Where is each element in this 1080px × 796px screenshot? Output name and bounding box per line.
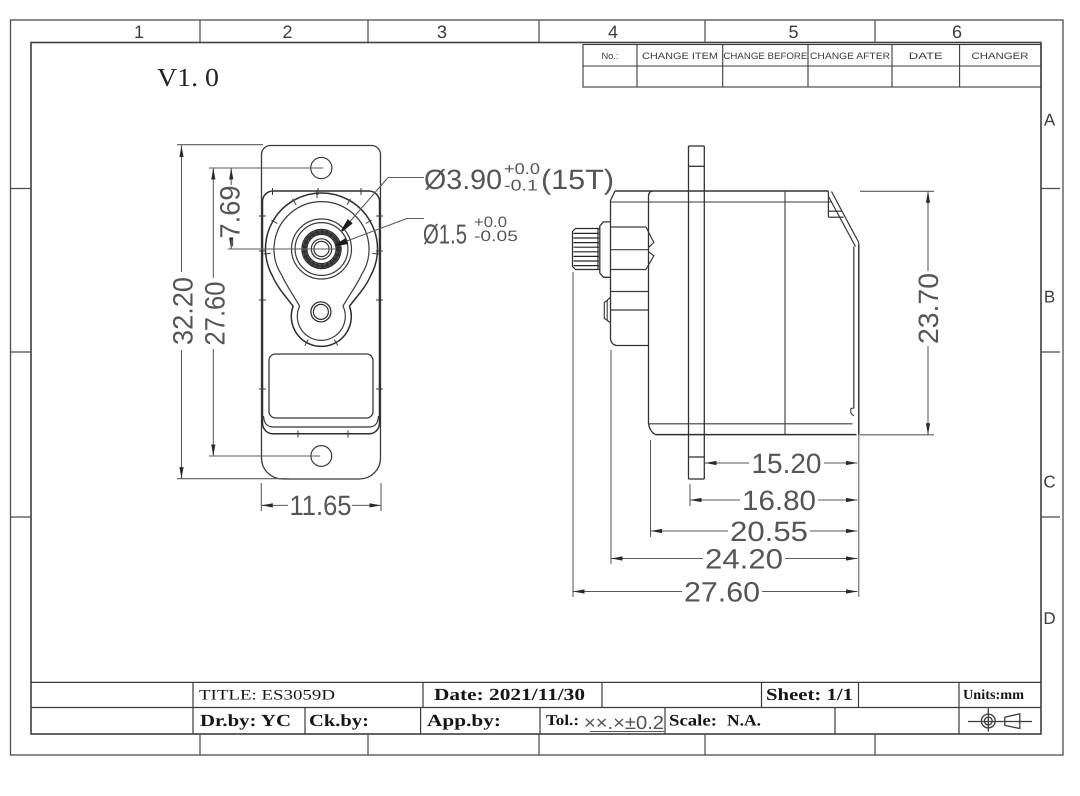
- svg-text:+0.0: +0.0: [504, 161, 540, 178]
- svg-text:CHANGE AFTER: CHANGE AFTER: [810, 51, 890, 61]
- svg-text:23.70: 23.70: [913, 273, 944, 344]
- svg-text:-7.69: -7.69: [215, 186, 246, 248]
- svg-text:(15T): (15T): [541, 164, 614, 195]
- svg-text:Sheet: 1/1: Sheet: 1/1: [766, 685, 853, 704]
- svg-text:TITLE: ES3059D: TITLE: ES3059D: [199, 688, 335, 704]
- svg-text:27.60: 27.60: [200, 282, 231, 346]
- svg-text:N.A.: N.A.: [727, 713, 761, 730]
- svg-text:Ck.by:: Ck.by:: [309, 711, 369, 730]
- svg-text:24.20: 24.20: [705, 543, 783, 574]
- svg-text:No.:: No.:: [601, 51, 618, 61]
- svg-text:16.80: 16.80: [742, 485, 816, 516]
- svg-text:CHANGER: CHANGER: [972, 51, 1029, 61]
- svg-text:15.20: 15.20: [752, 448, 822, 479]
- svg-text:2: 2: [282, 22, 292, 42]
- svg-text:Date: 2021/11/30: Date: 2021/11/30: [434, 685, 585, 704]
- svg-text:32.20: 32.20: [168, 277, 199, 345]
- svg-text:C: C: [1043, 473, 1055, 492]
- svg-text:4: 4: [608, 22, 618, 42]
- svg-text:Units:mm: Units:mm: [963, 688, 1024, 703]
- svg-text:B: B: [1044, 288, 1055, 307]
- svg-text:CHANGE ITEM: CHANGE ITEM: [642, 51, 718, 61]
- svg-text:-0.1: -0.1: [504, 178, 538, 195]
- svg-text:6: 6: [952, 22, 962, 42]
- svg-text:DATE: DATE: [909, 51, 943, 61]
- svg-text:1: 1: [134, 22, 144, 42]
- svg-text:5: 5: [788, 22, 798, 42]
- svg-text:11.65: 11.65: [290, 490, 352, 521]
- svg-text:××.×±0.2: ××.×±0.2: [584, 713, 664, 734]
- svg-text:Tol.:: Tol.:: [546, 713, 579, 729]
- svg-text:V1. 0: V1. 0: [157, 63, 219, 92]
- svg-text:Ø3.90: Ø3.90: [424, 164, 502, 195]
- svg-text:Dr.by: YC: Dr.by: YC: [200, 711, 291, 730]
- svg-text:CHANGE BEFORE: CHANGE BEFORE: [723, 51, 807, 61]
- svg-text:27.60: 27.60: [684, 576, 760, 607]
- svg-text:-0.05: -0.05: [474, 228, 518, 245]
- svg-text:20.55: 20.55: [730, 516, 808, 547]
- svg-text:A: A: [1044, 111, 1056, 130]
- svg-text:D: D: [1043, 609, 1055, 628]
- svg-text:3: 3: [437, 22, 447, 42]
- svg-text:Scale:: Scale:: [669, 713, 717, 730]
- svg-text:App.by:: App.by:: [427, 711, 501, 730]
- svg-text:Ø1.5: Ø1.5: [423, 219, 467, 250]
